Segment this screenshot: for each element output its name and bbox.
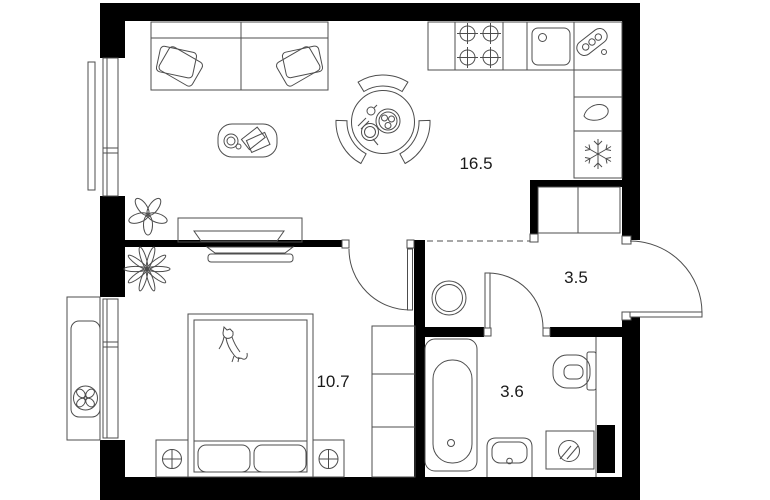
table-top bbox=[352, 91, 415, 154]
wall-top bbox=[100, 3, 640, 21]
wall-bottom bbox=[100, 477, 640, 500]
door-leaf bbox=[485, 273, 490, 328]
door-jamb bbox=[484, 328, 491, 336]
wall-right-lower bbox=[622, 315, 640, 500]
wall-right-upper bbox=[622, 3, 640, 240]
room-label-bathroom: 3.6 bbox=[500, 382, 524, 401]
room-label-living-kitchen: 16.5 bbox=[459, 154, 492, 173]
door-jamb bbox=[407, 240, 414, 248]
wall-bedroom-hallway bbox=[414, 240, 425, 477]
door-jamb bbox=[342, 240, 349, 248]
wall-left-top bbox=[100, 3, 125, 58]
wall-duct-block bbox=[597, 425, 615, 473]
wall-left-middle bbox=[100, 196, 125, 297]
wall-closet-stub bbox=[530, 180, 538, 234]
wall-bathroom-top-left bbox=[425, 327, 484, 337]
door-jamb bbox=[622, 236, 631, 244]
wall-closet-top bbox=[530, 180, 622, 187]
room-label-hallway: 3.5 bbox=[564, 268, 588, 287]
door-leaf bbox=[408, 249, 413, 310]
wall-bathroom-top-right bbox=[550, 327, 622, 337]
floor-plan-drawing: 16.5 3.5 10.7 3.6 bbox=[0, 0, 770, 500]
room-label-bedroom: 10.7 bbox=[316, 372, 349, 391]
closet-stub-jamb bbox=[530, 234, 538, 242]
door-jamb bbox=[543, 328, 550, 336]
floor-plan: 16.5 3.5 10.7 3.6 bbox=[0, 0, 770, 500]
door-leaf bbox=[630, 312, 702, 317]
